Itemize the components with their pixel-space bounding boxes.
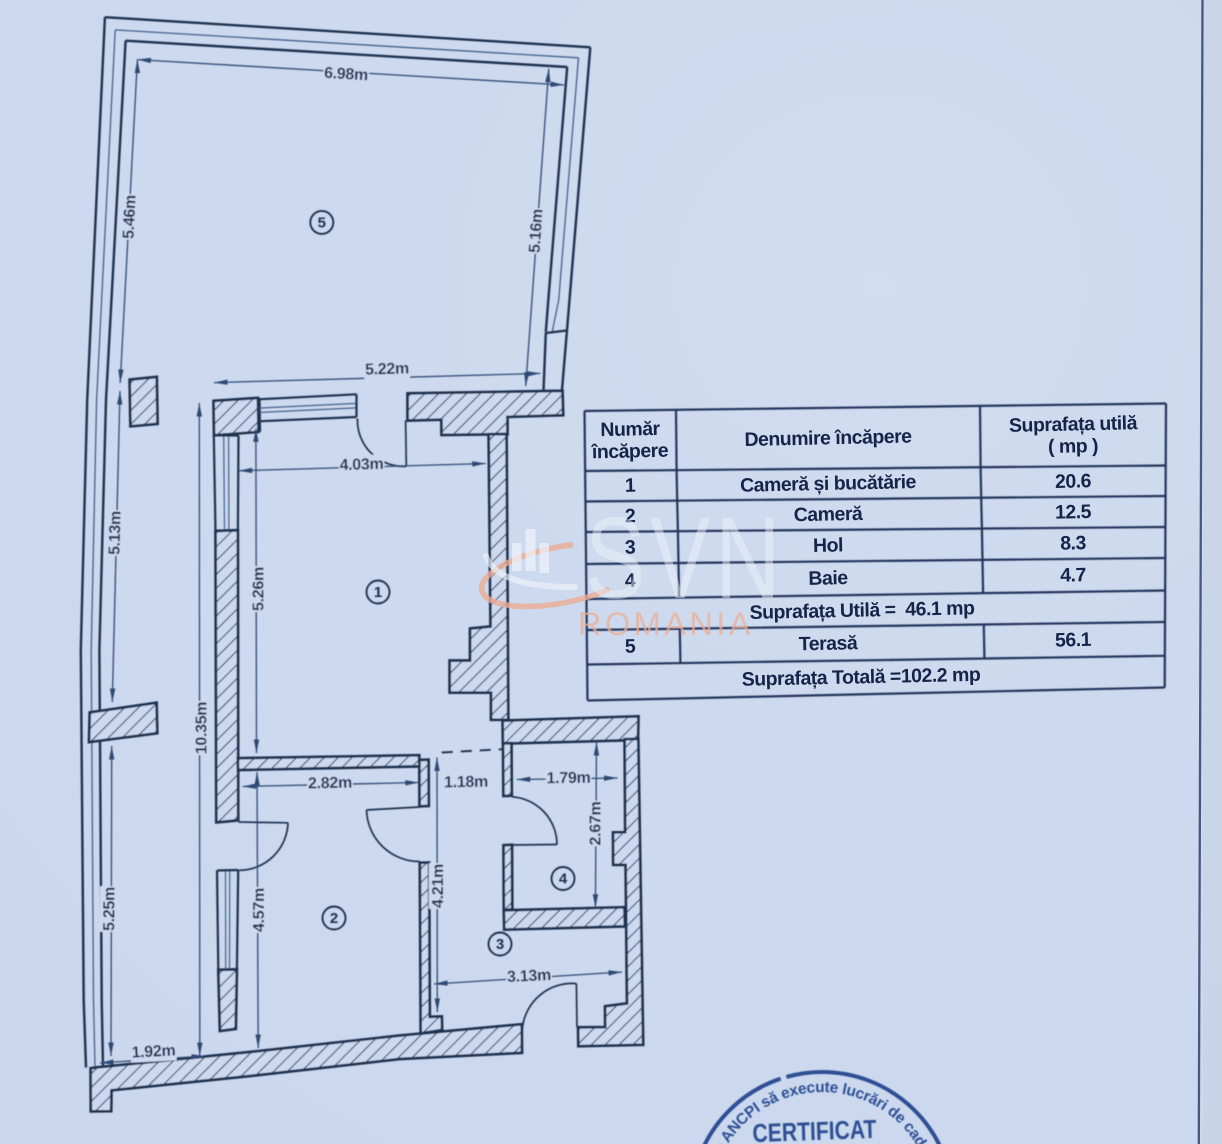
svg-text:Suprafața utilă: Suprafața utilă bbox=[1009, 412, 1138, 437]
svg-text:SVN: SVN bbox=[585, 493, 785, 623]
svg-text:Denumire încăpere: Denumire încăpere bbox=[744, 426, 912, 452]
svg-text:ROMANIA: ROMANIA bbox=[578, 606, 754, 642]
svg-text:( mp ): ( mp ) bbox=[1048, 435, 1099, 458]
svg-text:Baie: Baie bbox=[808, 567, 848, 590]
svg-text:10.35m: 10.35m bbox=[194, 702, 211, 755]
svg-text:3.13m: 3.13m bbox=[507, 967, 552, 986]
svg-text:12.5: 12.5 bbox=[1055, 501, 1092, 524]
svg-text:1: 1 bbox=[374, 584, 382, 601]
svg-text:5.22m: 5.22m bbox=[365, 360, 409, 378]
svg-text:5.46m: 5.46m bbox=[120, 195, 139, 240]
svg-text:5.26m: 5.26m bbox=[251, 567, 268, 611]
svg-text:1.92m: 1.92m bbox=[131, 1042, 176, 1061]
svg-text:5.16m: 5.16m bbox=[526, 208, 546, 253]
svg-text:2.82m: 2.82m bbox=[308, 775, 352, 793]
svg-text:1.18m: 1.18m bbox=[444, 774, 488, 792]
svg-text:20.6: 20.6 bbox=[1055, 470, 1092, 493]
svg-text:4.03m: 4.03m bbox=[339, 456, 383, 474]
svg-text:4.7: 4.7 bbox=[1060, 564, 1086, 587]
svg-text:Cameră: Cameră bbox=[794, 503, 864, 526]
svg-text:Terasă: Terasă bbox=[799, 632, 859, 655]
svg-text:4.21m: 4.21m bbox=[430, 864, 447, 908]
svg-text:Număr: Număr bbox=[600, 418, 661, 441]
svg-text:6.98m: 6.98m bbox=[324, 65, 369, 85]
svg-text:4.57m: 4.57m bbox=[251, 888, 268, 932]
svg-text:5: 5 bbox=[318, 214, 326, 231]
svg-text:4: 4 bbox=[559, 871, 568, 888]
svg-text:5.25m: 5.25m bbox=[101, 887, 118, 931]
svg-text:2.67m: 2.67m bbox=[588, 801, 605, 845]
svg-text:încăpere: încăpere bbox=[591, 440, 669, 464]
svg-text:Hol: Hol bbox=[813, 534, 843, 557]
svg-text:8.3: 8.3 bbox=[1060, 532, 1087, 555]
svg-text:1.79m: 1.79m bbox=[546, 770, 590, 788]
svg-text:2: 2 bbox=[330, 910, 338, 927]
svg-text:CERTIFICAT: CERTIFICAT bbox=[752, 1114, 877, 1144]
svg-text:56.1: 56.1 bbox=[1055, 629, 1092, 652]
svg-text:3: 3 bbox=[496, 936, 504, 953]
svg-text:5.13m: 5.13m bbox=[106, 511, 124, 555]
